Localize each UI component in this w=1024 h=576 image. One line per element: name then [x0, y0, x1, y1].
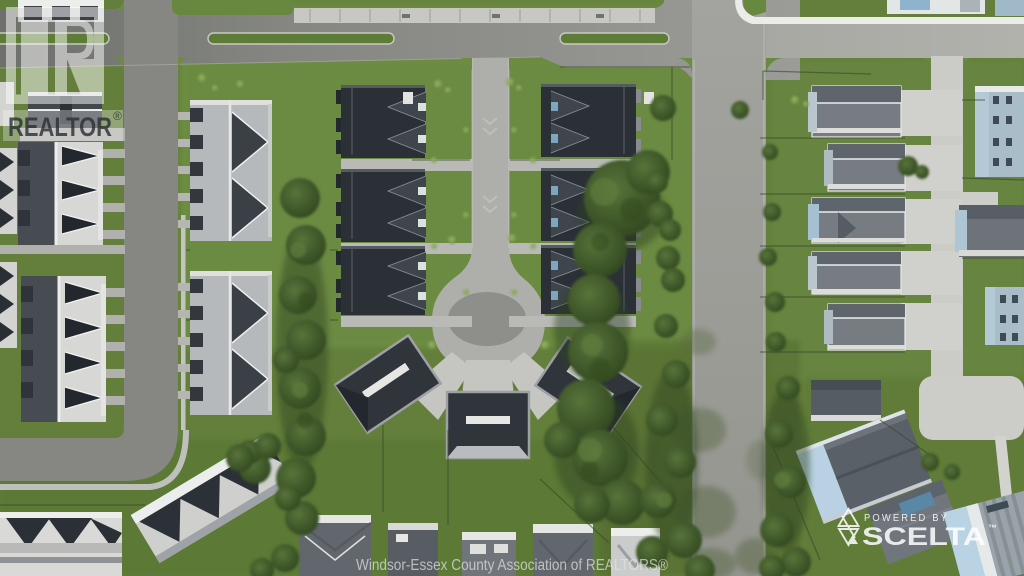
svg-text:SCELTA: SCELTA	[862, 523, 986, 551]
svg-text:™: ™	[988, 523, 997, 533]
svg-text:Windsor-Essex County Associati: Windsor-Essex County Association of REAL…	[356, 557, 668, 574]
svg-text:®: ®	[113, 109, 122, 123]
svg-text:REALTOR: REALTOR	[8, 112, 112, 142]
